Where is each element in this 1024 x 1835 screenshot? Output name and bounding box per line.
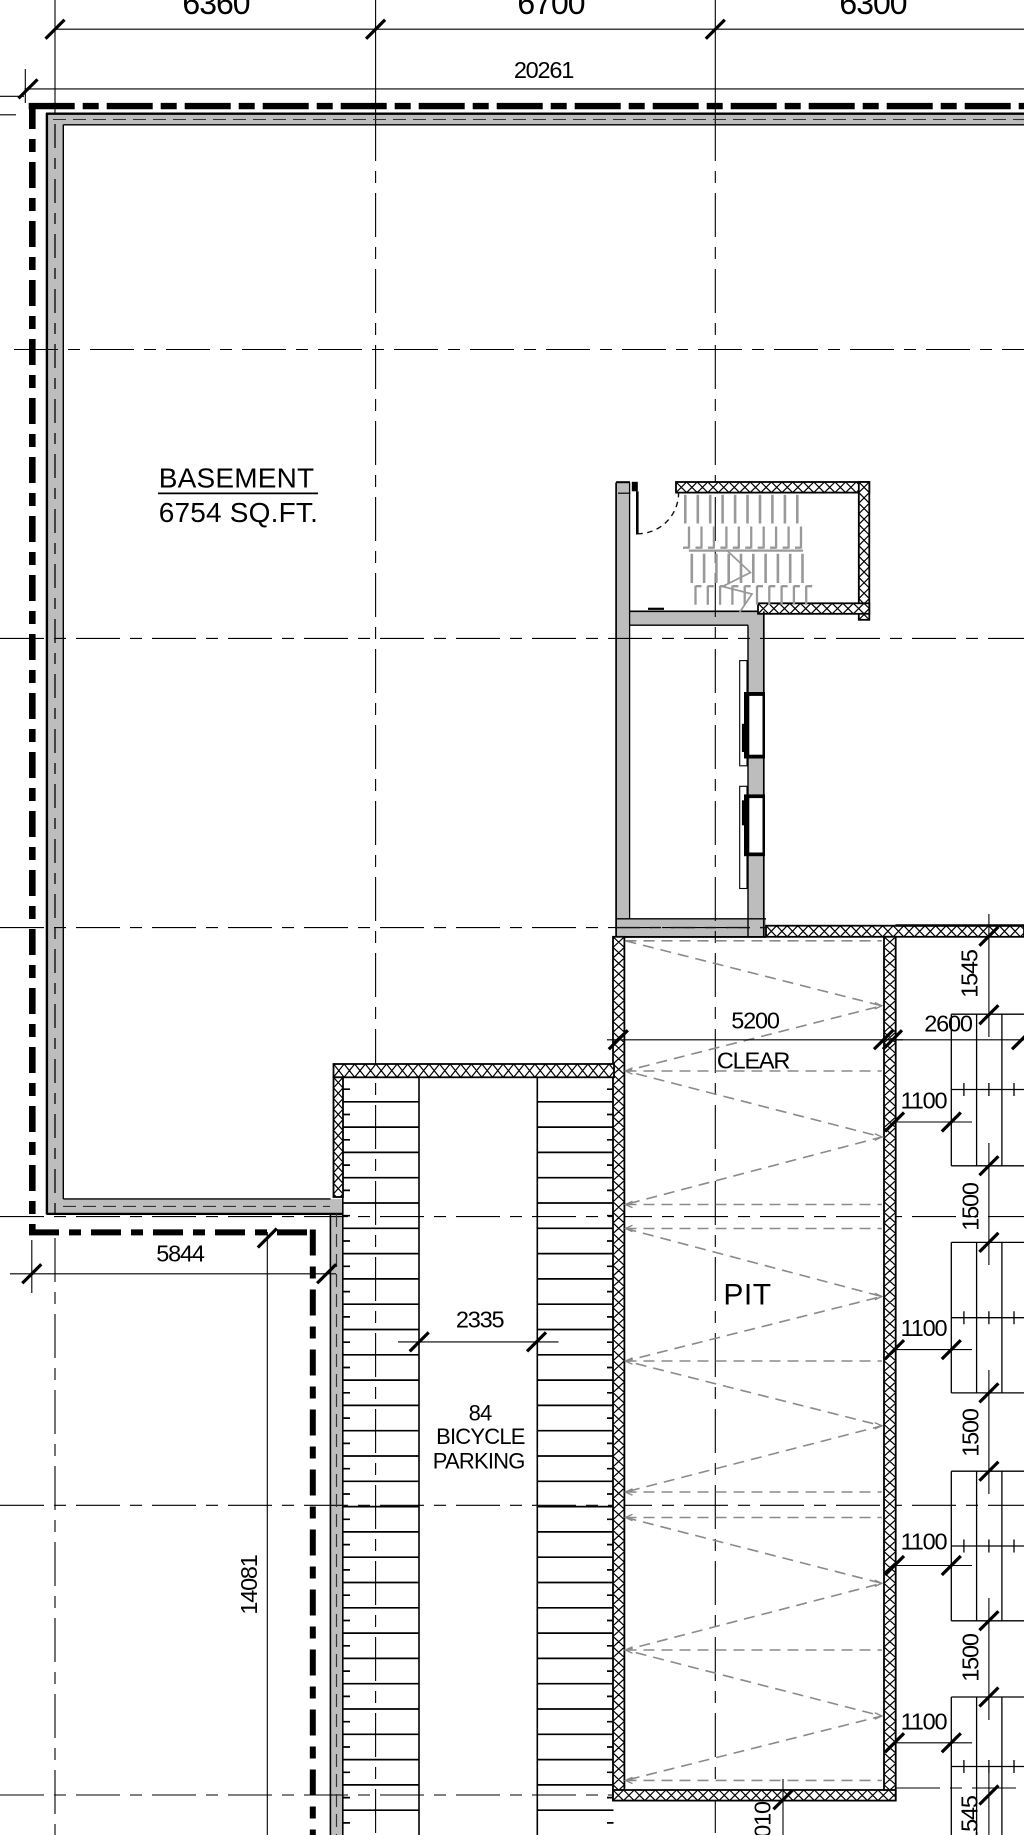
svg-text:1500: 1500 bbox=[958, 1408, 984, 1457]
svg-text:5200: 5200 bbox=[731, 1008, 780, 1034]
svg-text:6754 SQ.FT.: 6754 SQ.FT. bbox=[159, 497, 318, 528]
svg-text:BASEMENT: BASEMENT bbox=[159, 463, 315, 494]
svg-text:6300: 6300 bbox=[839, 0, 906, 21]
svg-text:PARKING: PARKING bbox=[433, 1449, 525, 1474]
svg-text:1100: 1100 bbox=[901, 1088, 948, 1114]
svg-text:1500: 1500 bbox=[958, 1182, 984, 1231]
svg-text:5844: 5844 bbox=[156, 1241, 205, 1267]
svg-text:1100: 1100 bbox=[901, 1315, 948, 1341]
svg-text:14081: 14081 bbox=[236, 1555, 262, 1614]
svg-text:CLEAR: CLEAR bbox=[717, 1048, 790, 1074]
svg-text:BICYCLE: BICYCLE bbox=[436, 1424, 525, 1449]
svg-text:1100: 1100 bbox=[901, 1709, 948, 1735]
svg-text:2335: 2335 bbox=[456, 1307, 505, 1333]
svg-text:1100: 1100 bbox=[901, 1529, 948, 1555]
svg-text:1545: 1545 bbox=[957, 1795, 983, 1835]
svg-text:010: 010 bbox=[750, 1801, 776, 1835]
svg-text:6700: 6700 bbox=[517, 0, 584, 21]
svg-text:20261: 20261 bbox=[514, 57, 573, 83]
svg-text:1545: 1545 bbox=[957, 949, 983, 998]
svg-text:6360: 6360 bbox=[182, 0, 249, 21]
svg-text:PIT: PIT bbox=[723, 1279, 771, 1312]
svg-text:1500: 1500 bbox=[958, 1633, 984, 1682]
svg-text:84: 84 bbox=[469, 1400, 492, 1425]
